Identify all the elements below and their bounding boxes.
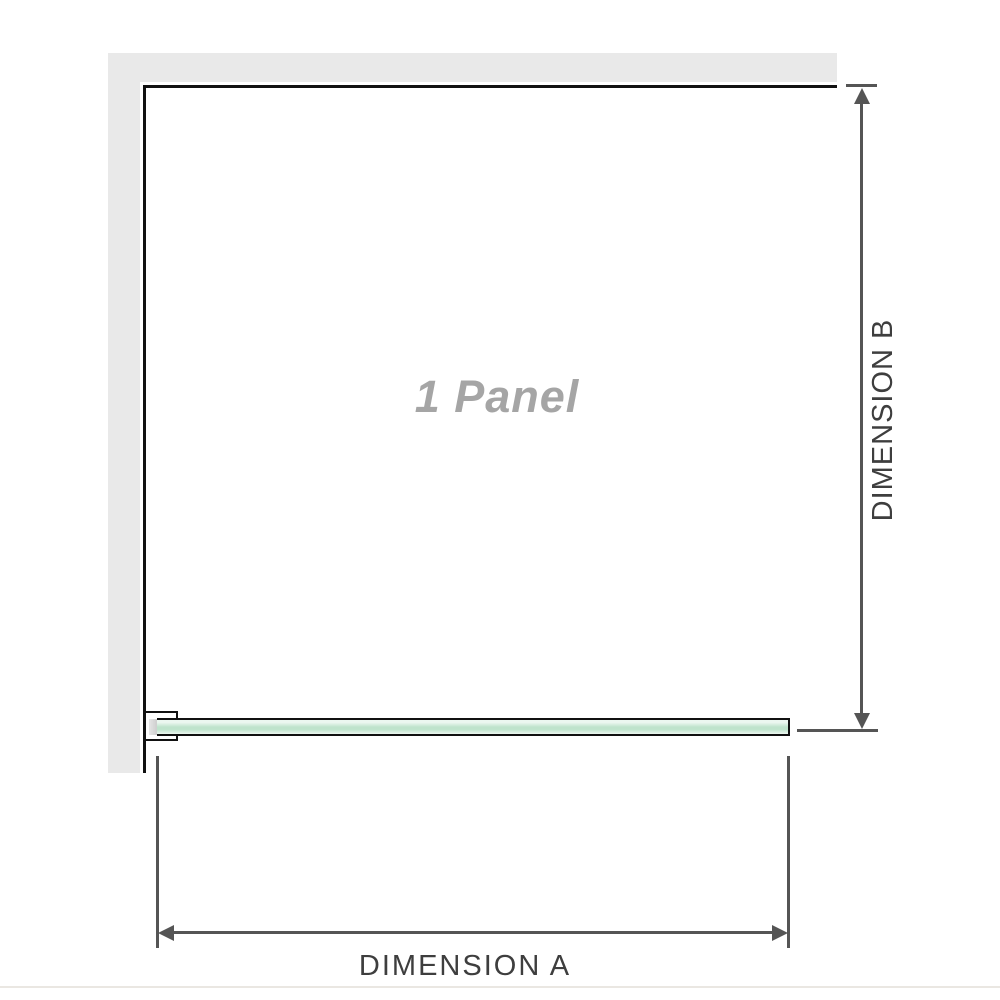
dimension-a-label: DIMENSION A — [150, 950, 780, 982]
dimension-b-bottom-tick — [797, 729, 878, 732]
glass-panel — [157, 718, 790, 736]
panel-count-label: 1 Panel — [347, 372, 647, 422]
dimension-a-line — [164, 931, 782, 934]
dimension-b-top-tick — [846, 84, 877, 87]
wall-edge-top-line — [143, 85, 837, 88]
wall-left-bar — [108, 53, 140, 773]
dimension-a-right-extension-line — [787, 756, 790, 948]
dimension-a-arrow-right-icon — [772, 925, 788, 941]
dimension-b-arrow-down-icon — [854, 713, 870, 729]
dimension-b-label: DIMENSION B — [866, 270, 900, 570]
shower-panel-dimension-diagram: 1 Panel DIMENSION B DIMENSION A — [0, 0, 1000, 1000]
dimension-a-left-extension-line — [156, 756, 159, 948]
dimension-b-arrow-up-icon — [854, 88, 870, 104]
page-baseline-divider — [0, 986, 1000, 988]
dimension-b-line — [860, 95, 863, 717]
wall-top-bar — [108, 53, 837, 82]
wall-edge-left-line — [143, 85, 146, 773]
dimension-a-arrow-left-icon — [158, 925, 174, 941]
